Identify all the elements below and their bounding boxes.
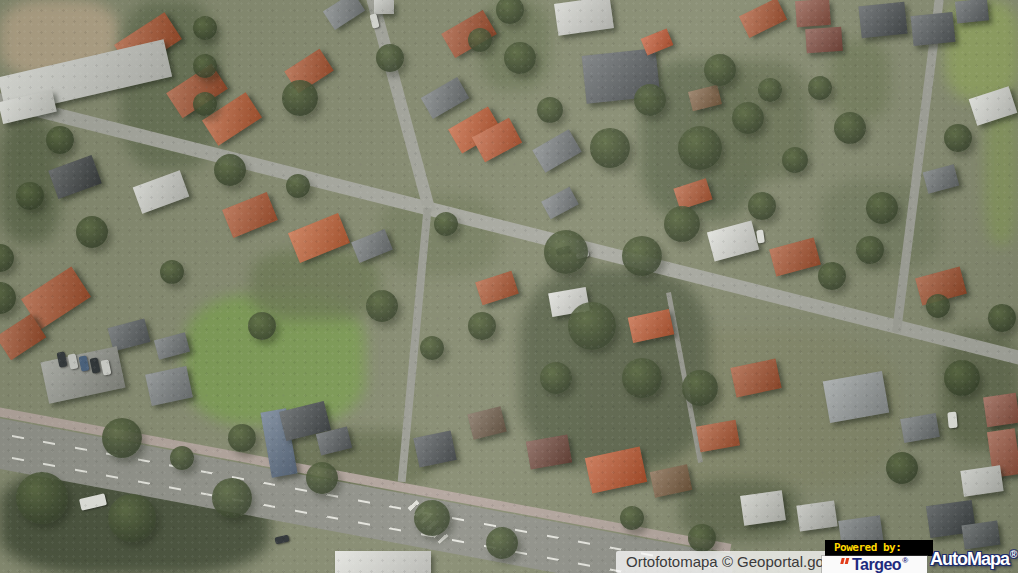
tree-canopy — [664, 206, 700, 242]
ground-patch — [830, 40, 890, 120]
tree-canopy — [682, 370, 718, 406]
building-roof — [707, 221, 759, 262]
tree-canopy — [366, 290, 398, 322]
automapa-registered-mark: ® — [1010, 545, 1017, 569]
building-roof — [805, 27, 843, 53]
tree-canopy — [193, 54, 217, 78]
tree-canopy — [808, 76, 832, 100]
aerial-imagery — [0, 0, 1018, 573]
building-roof — [796, 500, 837, 531]
targeo-registered-mark: ® — [902, 556, 908, 565]
tree-canopy — [622, 236, 662, 276]
tree-canopy — [748, 192, 776, 220]
building-roof — [467, 406, 506, 439]
tree-canopy — [634, 84, 666, 116]
building-roof — [900, 413, 940, 443]
tree-canopy — [420, 336, 444, 360]
tree-canopy — [944, 124, 972, 152]
building-roof — [335, 551, 431, 573]
tree-canopy — [622, 358, 662, 398]
tree-canopy — [704, 54, 736, 86]
building-roof — [413, 430, 456, 467]
tree-canopy — [544, 230, 588, 274]
tree-canopy — [286, 174, 310, 198]
tree-canopy — [504, 42, 536, 74]
building-roof — [911, 12, 956, 46]
tree-canopy — [248, 312, 276, 340]
building-roof — [955, 0, 989, 24]
tree-canopy — [16, 182, 44, 210]
tree-canopy — [228, 424, 256, 452]
tree-canopy — [76, 216, 108, 248]
tree-canopy — [468, 28, 492, 52]
tree-canopy — [193, 16, 217, 40]
building-roof — [960, 465, 1003, 496]
tree-canopy — [590, 128, 630, 168]
tree-canopy — [102, 418, 142, 458]
building-roof — [795, 0, 831, 27]
building-roof — [858, 2, 907, 39]
vehicle — [57, 351, 68, 367]
targeo-logo[interactable]: Targeo ® — [822, 556, 927, 573]
map-attribution: Ortofotomapa © Geoportal.gov.pl — [616, 551, 856, 573]
building-roof — [962, 521, 1001, 550]
targeo-logo-text: Targeo — [852, 556, 901, 573]
building-roof — [323, 0, 365, 30]
tree-canopy — [434, 212, 458, 236]
tree-canopy — [468, 312, 496, 340]
building-roof — [421, 77, 469, 119]
vehicle — [947, 412, 957, 429]
building-roof — [641, 28, 674, 55]
tree-canopy — [818, 262, 846, 290]
tree-canopy — [834, 112, 866, 144]
building-roof — [739, 0, 787, 38]
tree-canopy — [537, 97, 563, 123]
tree-canopy — [926, 294, 950, 318]
tree-canopy — [620, 506, 644, 530]
tree-canopy — [160, 260, 184, 284]
powered-by-label: Powered by: — [825, 540, 933, 556]
building-roof — [740, 490, 786, 526]
tree-canopy — [214, 154, 246, 186]
tree-canopy — [193, 92, 217, 116]
building-roof — [769, 238, 821, 277]
tree-canopy — [414, 500, 450, 536]
building-roof — [554, 0, 614, 36]
building-roof — [983, 393, 1018, 427]
tree-canopy — [688, 524, 716, 552]
tree-canopy — [486, 527, 518, 559]
tree-canopy — [0, 282, 16, 314]
building-roof — [475, 271, 519, 306]
tree-canopy — [886, 452, 918, 484]
building-roof — [222, 192, 278, 238]
tree-canopy — [108, 494, 156, 542]
tree-canopy — [212, 478, 252, 518]
tree-canopy — [988, 304, 1016, 332]
tree-canopy — [866, 192, 898, 224]
tree-canopy — [306, 462, 338, 494]
building-roof — [133, 170, 190, 213]
tree-canopy — [46, 126, 74, 154]
building-roof — [374, 0, 394, 14]
tree-canopy — [170, 446, 194, 470]
building-roof — [923, 164, 960, 194]
attribution-text: Ortofotomapa © Geoportal.gov.pl — [626, 553, 846, 570]
building-roof — [145, 366, 193, 406]
vehicle — [274, 535, 289, 545]
tree-canopy — [16, 472, 68, 524]
building-roof — [541, 187, 579, 220]
tree-canopy — [732, 102, 764, 134]
automapa-logo[interactable]: AutoMapa ® — [930, 549, 1017, 569]
tree-canopy — [540, 362, 572, 394]
tree-canopy — [856, 236, 884, 264]
tree-canopy — [282, 80, 318, 116]
tree-canopy — [0, 244, 14, 272]
tree-canopy — [568, 302, 616, 350]
tree-canopy — [758, 78, 782, 102]
tree-canopy — [678, 126, 722, 170]
targeo-quote-icon — [840, 558, 844, 564]
tree-canopy — [944, 360, 980, 396]
map-viewport[interactable]: Ortofotomapa © Geoportal.gov.pl Powered … — [0, 0, 1018, 573]
automapa-logo-text: AutoMapa — [930, 549, 1009, 569]
tree-canopy — [376, 44, 404, 72]
tree-canopy — [782, 147, 808, 173]
vehicle — [756, 230, 765, 244]
building-roof — [532, 129, 581, 173]
